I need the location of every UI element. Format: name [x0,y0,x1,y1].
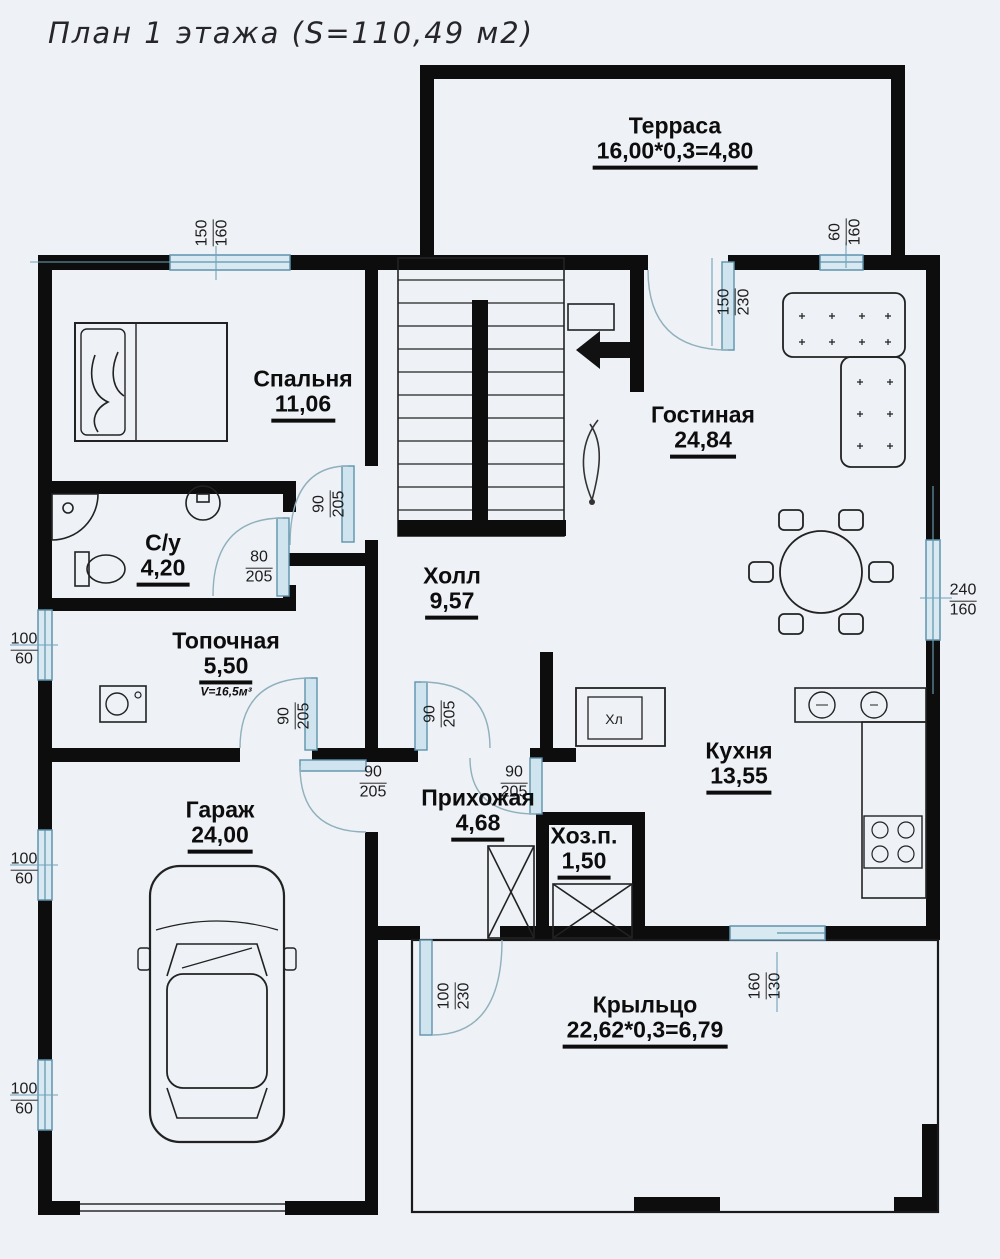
burner [898,846,914,862]
dim-window-top-right: 60 160 [828,219,865,246]
garage-door-arc [300,766,366,832]
car-reflection [182,948,252,968]
porch-outline [412,940,938,1212]
car-mirror [138,948,150,970]
room-area: 5,50 [200,654,253,684]
wall-hozp-left [536,812,549,940]
wall-hall-left [365,255,378,466]
room-label-krylco: Крыльцо 22,62*0,3=6,79 [563,992,728,1049]
wall-lobby-bottom [283,553,378,566]
dim-window-kitchen-bottom: 160 130 [748,973,785,1000]
wall-su-bottom [38,598,296,611]
room-name: Спальня [253,366,352,392]
dim-door-entrance: 100 230 [437,983,474,1010]
room-volume: V=16,5м³ [172,684,279,698]
room-name: Гараж [186,797,255,823]
room-label-spalnya: Спальня 11,06 [253,366,352,423]
plant [583,420,599,500]
chair [749,562,773,582]
dim-door-hall: 90 205 [423,701,460,728]
washbasin-tap [197,494,209,502]
kitchen-counter [795,688,926,898]
room-label-prihozhaya: Прихожая 4,68 [421,785,534,842]
room-area: 16,00*0,3=4,80 [593,139,758,169]
car-roof [167,974,267,1088]
room-label-su: С/у 4,20 [137,530,190,587]
terrace-wall-right [891,65,905,255]
room-label-holl: Холл 9,57 [423,563,481,620]
chair [839,614,863,634]
dim-window-bedroom-top: 150 160 [195,220,232,247]
room-name: Хоз.п. [551,823,618,849]
plant-pot [589,499,595,505]
bed-decor [113,352,124,396]
car [138,866,296,1142]
room-label-hozp: Хоз.п. 1,50 [551,823,618,880]
chair [779,510,803,530]
bed [75,323,227,441]
room-area: 22,62*0,3=6,79 [563,1018,728,1048]
living-wall-items [568,304,630,505]
wall-hall-left [365,832,378,1215]
room-label-kuhnya: Кухня 13,55 [705,738,772,795]
fireplace-arrow [576,331,630,369]
wall-bedroom-bottom [38,481,296,494]
shower-drain [63,503,73,513]
entrance-door-leaf [420,940,432,1035]
stove [864,816,922,868]
room-area: 24,84 [670,428,736,458]
room-area: 13,55 [706,764,772,794]
room-label-garazh: Гараж 24,00 [186,797,255,854]
room-name: Прихожая [421,785,534,811]
room-name: Кухня [705,738,772,764]
room-label-topochnaya: Топочная 5,50 V=16,5м³ [172,627,279,698]
toilet-bowl [87,555,125,583]
wall-living-left [630,255,644,392]
su-door-leaf [277,518,289,596]
shelf [568,304,614,330]
wall-kitchen-stub [540,652,553,752]
dim-window-living-right: 240 160 [950,583,977,620]
dim-door-bedroom: 90 205 [312,491,349,518]
room-area: 24,00 [187,823,253,853]
garage-gate [80,1204,285,1211]
outer-wall-bottom [825,926,940,940]
dim-window-left-1: 100 60 [11,632,38,669]
bed-decor [92,355,108,432]
garage-wall-bottom [38,1201,80,1215]
floor-plan-page: План 1 этажа (S=110,49 м2) [0,0,1000,1259]
room-name: С/у [137,530,190,556]
room-area: 9,57 [426,589,479,619]
dim-door-terrace: 150 230 [717,289,754,316]
chair [869,562,893,582]
dim-window-left-3: 100 60 [11,1082,38,1119]
room-name: Холл [423,563,481,589]
garage-door-leaf [300,760,366,771]
garage-wall-bottom [285,1201,378,1215]
boiler [100,686,146,722]
porch-pier [634,1197,720,1213]
outer-wall-left [38,900,52,1060]
stairs-divider [472,300,488,536]
corner-shower [52,494,98,540]
terrace-wall-left [420,65,434,255]
wall-hallway-top [378,748,418,762]
sofa-buttons [799,313,893,449]
room-name: Крыльцо [563,992,728,1018]
dim-door-su: 80 205 [246,550,273,587]
terrace-wall-top [420,65,905,79]
chair [839,510,863,530]
sofa [783,293,905,467]
floor-plan-drawing [0,0,1000,1259]
wall-hall-left [365,540,378,762]
room-area: 11,06 [271,392,335,422]
dim-door-topochnaya: 90 205 [277,703,314,730]
room-label-gostinaya: Гостиная 24,84 [651,402,755,459]
car-rear-window [167,1088,267,1118]
dim-window-left-2: 100 60 [11,852,38,889]
wall-hozp-right [632,812,645,940]
car-windshield [167,944,267,976]
room-name: Гостиная [651,402,755,428]
stairs [398,258,566,536]
burner [872,846,888,862]
wall-topochnaya-bottom [38,748,240,762]
outer-wall-top [728,255,820,270]
fridge-label: Хл [605,711,623,727]
room-name: Топочная [172,627,279,653]
room-label-terrasa: Терраса 16,00*0,3=4,80 [593,113,758,170]
car-hood-line [156,921,278,930]
dining-table [749,510,893,634]
room-area: 4,20 [137,556,190,586]
outer-wall-left [38,255,52,610]
burner [872,822,888,838]
room-area: 1,50 [558,849,611,879]
porch-pier [922,1124,938,1213]
dim-door-garage: 90 205 [360,765,387,802]
burner [898,822,914,838]
car-mirror [284,948,296,970]
room-area: 4,68 [452,811,505,841]
stairs-bottom-wall [398,520,566,536]
chair [779,614,803,634]
room-name: Терраса [593,113,758,139]
